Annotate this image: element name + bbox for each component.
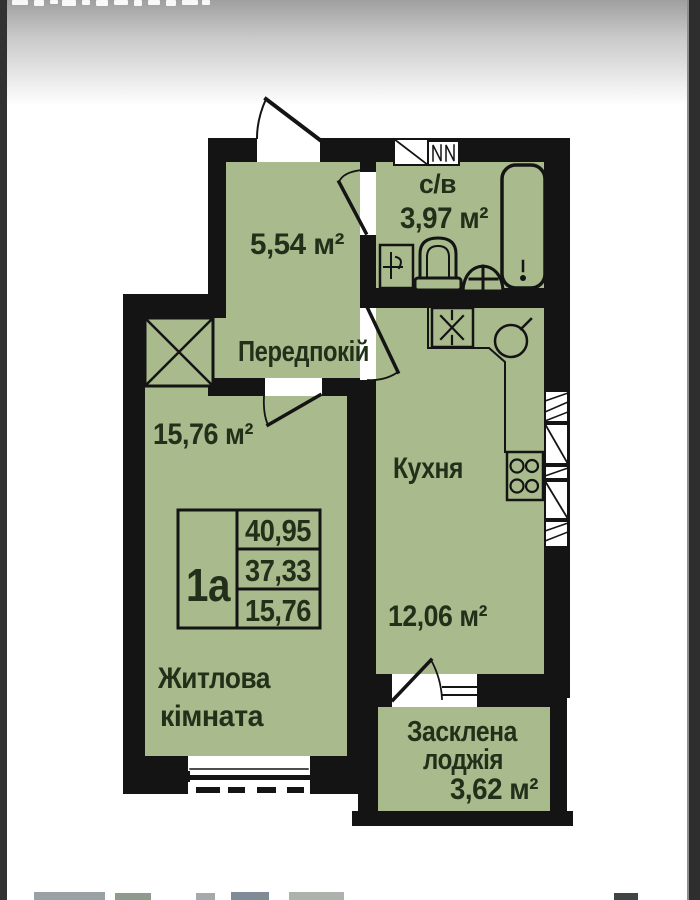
cropped-thumbnail — [196, 893, 215, 900]
wall-hallway-left — [208, 138, 226, 318]
wall-living-left — [123, 294, 145, 794]
kitchen-sink-symbol — [432, 308, 473, 347]
cropped-thumbnail — [289, 892, 344, 900]
bathroom-name-label: с/в — [419, 169, 456, 199]
left-edge-bar — [0, 0, 7, 900]
wall-loggia-left — [358, 690, 378, 820]
entrance-door-swing-symbol — [257, 99, 320, 140]
cropped-thumbnail — [614, 893, 638, 900]
floor-plan: 1а 40,95 37,33 15,76 5,54 м² Передпокій … — [0, 0, 700, 900]
living-door-opening — [265, 378, 322, 396]
cropped-thumbnail — [231, 892, 269, 900]
hallway-area-label: 5,54 м² — [250, 228, 345, 261]
kitchen-area-label: 12,06 м² — [388, 600, 487, 633]
loggia-window-opening — [443, 674, 477, 707]
wardrobe-symbol — [145, 318, 213, 386]
kitchen-name-label: Кухня — [393, 452, 463, 485]
cropped-thumbnails-strip — [0, 890, 700, 900]
entrance-opening — [257, 138, 320, 162]
wall-loggia-bottom — [352, 811, 573, 826]
unit-table-value-2: 37,33 — [245, 553, 311, 588]
living-name-label-line1: Житлова — [157, 662, 271, 695]
photo-viewer-page: 1а 40,95 37,33 15,76 5,54 м² Передпокій … — [0, 0, 700, 900]
unit-table-value-3: 15,76 — [245, 593, 311, 628]
unit-table-value-1: 40,95 — [245, 513, 311, 548]
stove-symbol — [507, 452, 543, 500]
right-edge-bar — [687, 0, 700, 900]
cropped-thumbnail — [115, 893, 151, 900]
shower-drain-symbol — [380, 245, 413, 288]
loggia-name-label-line2: лоджія — [423, 744, 503, 776]
cropped-thumbnail — [34, 892, 105, 900]
loggia-area-label: 3,62 м² — [450, 773, 538, 806]
bathtub-symbol — [502, 165, 545, 288]
right-vent-shaft-symbol — [545, 391, 568, 547]
living-area-label: 15,76 м² — [153, 418, 253, 451]
hallway-name-label: Передпокій — [238, 336, 369, 368]
top-vent-shaft-symbol — [394, 139, 459, 165]
bathroom-area-label: 3,97 м² — [400, 202, 488, 235]
unit-label: 1а — [186, 559, 231, 611]
living-name-label-line2: кімната — [160, 700, 264, 733]
wall-loggia-right — [550, 690, 567, 823]
